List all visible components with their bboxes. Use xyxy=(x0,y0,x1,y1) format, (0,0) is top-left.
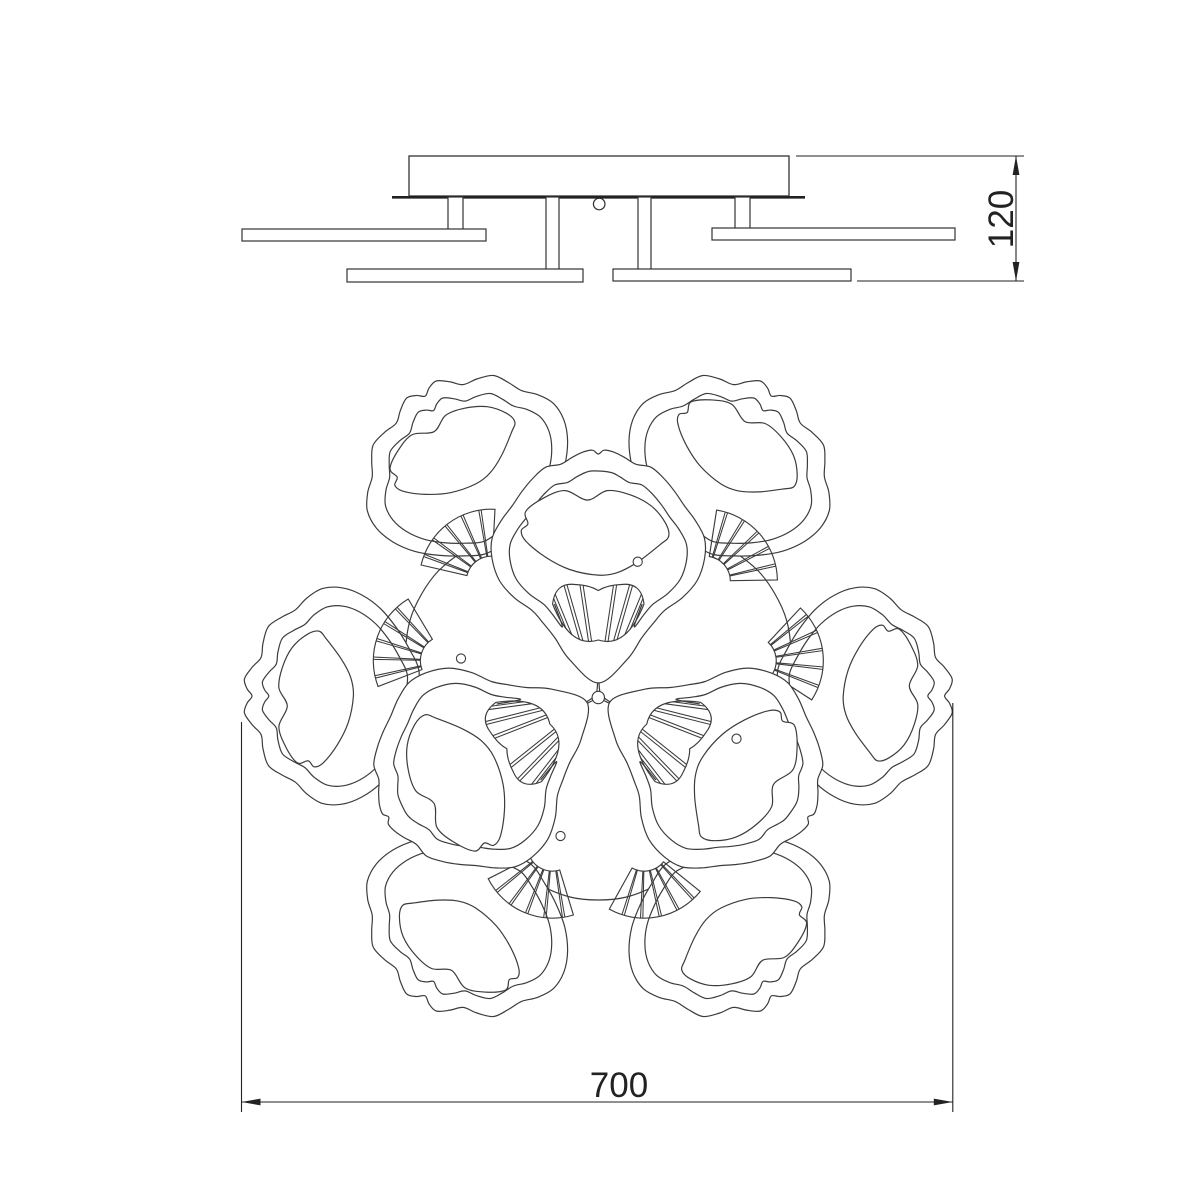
svg-text:700: 700 xyxy=(590,1066,648,1105)
svg-text:120: 120 xyxy=(982,190,1021,248)
